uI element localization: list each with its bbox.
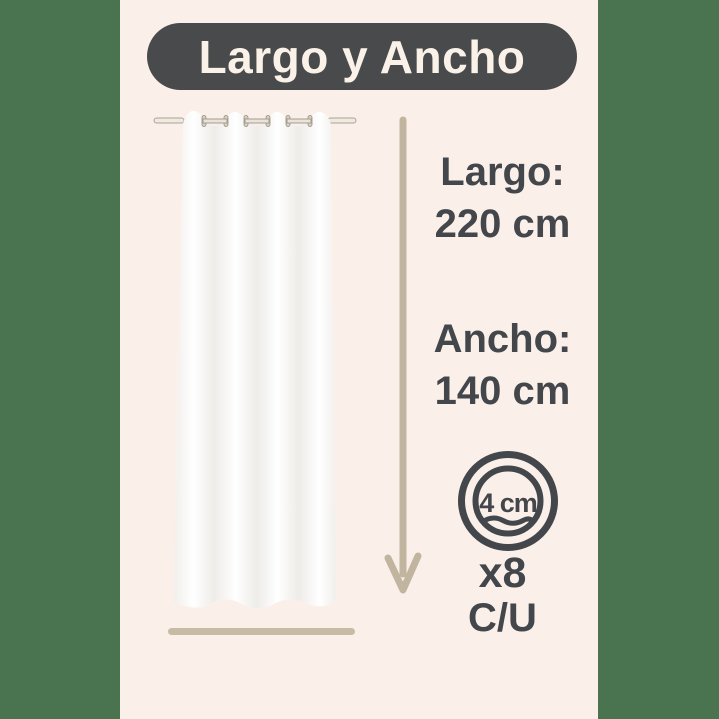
product-infographic: Largo y Ancho <box>0 0 719 719</box>
width-label: Ancho: <box>410 313 595 365</box>
page-title: Largo y Ancho <box>199 30 526 84</box>
title-pill: Largo y Ancho <box>147 23 577 90</box>
left-green-bar <box>0 0 120 719</box>
curtain-fabric <box>174 111 336 609</box>
content-panel: Largo y Ancho <box>120 0 598 719</box>
right-green-bar <box>598 0 719 719</box>
width-value: 140 cm <box>410 365 595 417</box>
grommet-size-label: 4 cm <box>479 488 537 518</box>
per-unit-label: C/U <box>410 595 595 641</box>
grommet-quantity: x8 <box>410 549 595 597</box>
width-indicator-line <box>168 628 355 635</box>
curtain-grommet <box>286 116 312 127</box>
curtain-rod-right-icon <box>328 118 356 123</box>
length-measurement: Largo: 220 cm <box>410 146 595 250</box>
width-measurement: Ancho: 140 cm <box>410 313 595 417</box>
length-label: Largo: <box>410 146 595 198</box>
grommet-diameter-icon: 4 cm <box>456 449 560 553</box>
length-value: 220 cm <box>410 198 595 250</box>
curtain-rod-left-icon <box>154 118 184 123</box>
curtain-grommet <box>244 116 270 127</box>
curtain-illustration <box>150 104 360 649</box>
curtain-grommet <box>202 116 228 127</box>
